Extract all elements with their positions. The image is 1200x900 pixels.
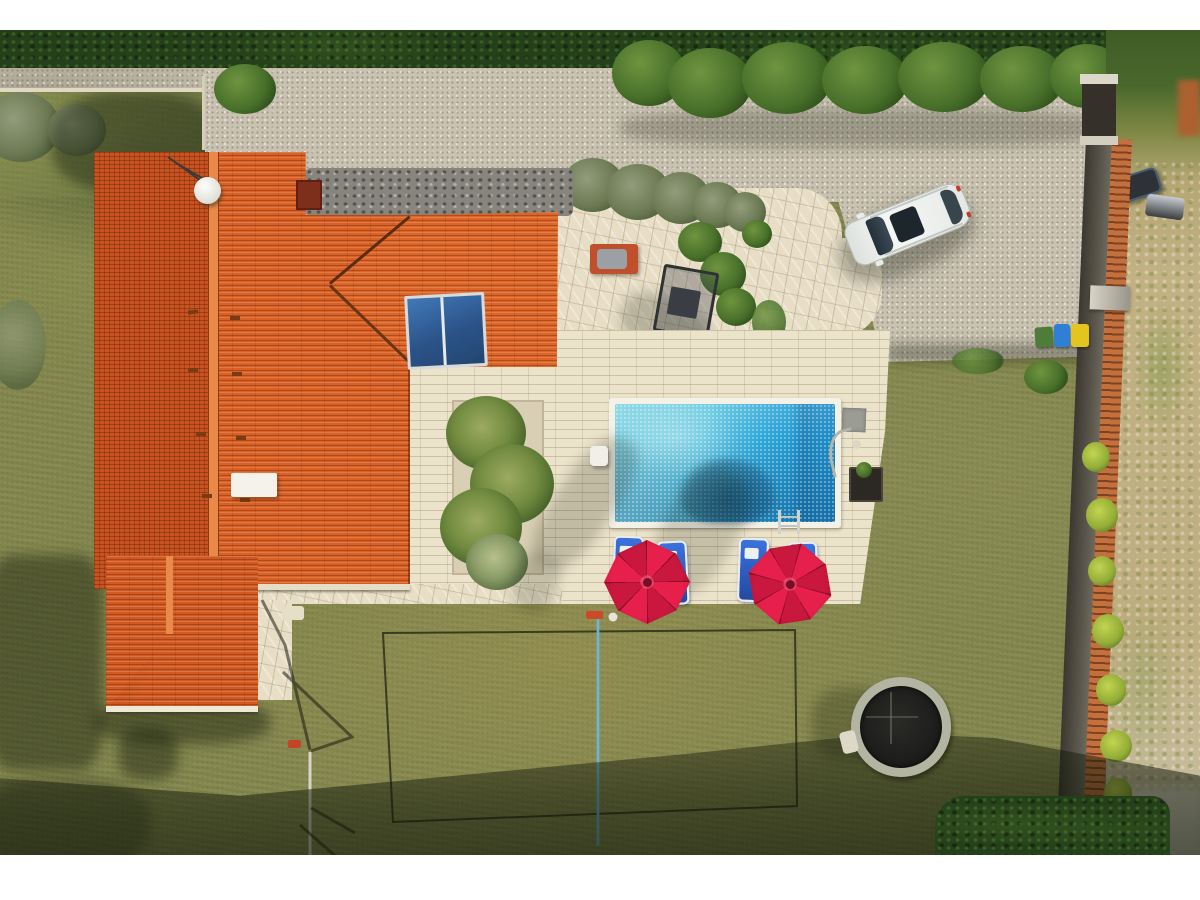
letterbox-bottom (0, 855, 1200, 900)
patio-shrub (716, 288, 756, 326)
hedge-bush (742, 42, 832, 114)
hedge-bush (952, 348, 1004, 374)
roof-ridge (208, 152, 219, 589)
roof-vent (232, 372, 242, 376)
curb (0, 88, 217, 92)
car-sunroof (888, 205, 925, 243)
roof-vent (240, 498, 250, 502)
roof-vent (230, 316, 240, 320)
gate-pillar (1080, 74, 1118, 84)
wall-hedge-bush (1096, 674, 1126, 706)
gate-pillar (1080, 136, 1118, 145)
hedge-bush (1024, 360, 1068, 394)
wall-hedge-bush (1092, 614, 1124, 648)
boundary-hedge-bottom (935, 796, 1170, 856)
wall-hedge-bush (1082, 442, 1110, 472)
dirt-patch (1178, 80, 1200, 136)
letterbox-top (0, 0, 1200, 30)
wall-hedge-bush (1088, 556, 1116, 586)
car-rear-window (939, 187, 965, 226)
pool-ladder (778, 510, 800, 534)
roof-vent (188, 368, 198, 372)
patio-shrub (742, 220, 772, 248)
towel (744, 548, 758, 559)
garden-swing (653, 264, 720, 341)
swing-seat (667, 286, 701, 319)
hedge-bush (898, 42, 990, 112)
wall-hedge-bush (1086, 498, 1118, 532)
roof-vent (202, 494, 212, 498)
roof-vent (236, 436, 246, 440)
satellite-dish (194, 177, 221, 204)
waste-bin-yellow (1071, 324, 1089, 347)
trampoline-mat-seam (890, 692, 892, 744)
car-mirror (856, 212, 865, 220)
gate-pillar (1090, 285, 1131, 310)
stepping-stone (282, 606, 304, 620)
house-shadow (0, 555, 103, 770)
bbq-cover (597, 249, 627, 269)
wall-hedge-bush (1100, 730, 1132, 762)
side-table (590, 446, 608, 466)
roof-lower-wing (106, 556, 258, 710)
roof-eave-gutter (106, 706, 258, 712)
solar-panel (404, 292, 488, 370)
hedge-bush (214, 64, 276, 114)
bbq-table (590, 244, 638, 274)
parasol-pole-top (643, 578, 652, 587)
hedge-bush (668, 48, 752, 118)
trampoline-mat-seam (866, 716, 918, 718)
solar-panel-divider (440, 297, 447, 365)
skimmer-lid (852, 440, 861, 449)
entrance-gate (1082, 78, 1116, 142)
roof-vent-box (231, 473, 277, 497)
small-plant (856, 462, 872, 478)
roof-ridge (166, 556, 173, 634)
hip-shade (106, 556, 258, 710)
rock-mulch-strip (305, 168, 573, 216)
tree-shadow (118, 728, 178, 780)
trampoline (851, 677, 951, 777)
waste-bin-green (1034, 326, 1053, 347)
parasol-pole-top (785, 579, 796, 590)
chimney (296, 180, 322, 210)
aerial-photo-stage (0, 0, 1200, 900)
hedge-bush (822, 46, 908, 114)
waste-bin-blue (1054, 324, 1070, 347)
roof-vent (196, 432, 206, 436)
